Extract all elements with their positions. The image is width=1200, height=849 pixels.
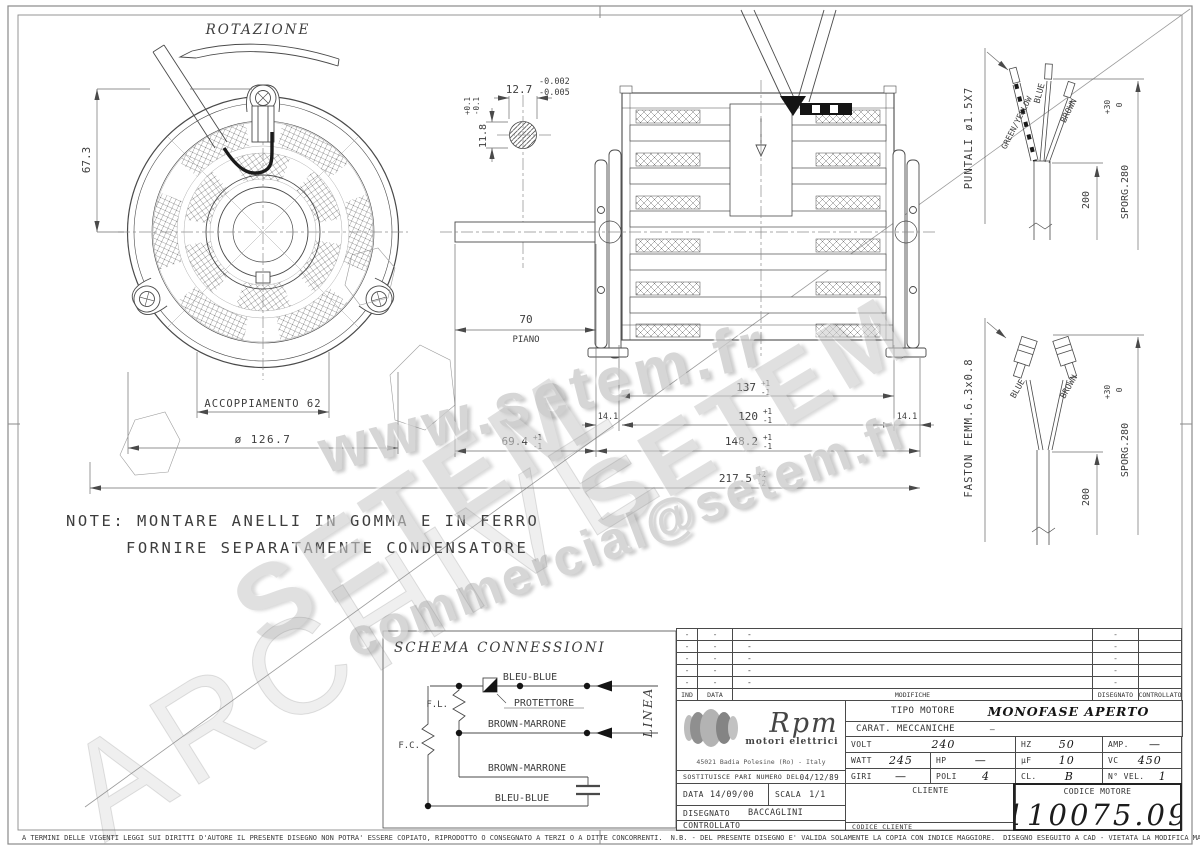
cl-label: CL.	[1021, 772, 1037, 781]
disegnato-cell: DISEGNATO BACCAGLINI	[676, 805, 846, 821]
schema-bleu-top: BLEU-BLUE	[503, 672, 557, 683]
data-value: 14/09/00	[710, 790, 754, 800]
tol-h-lower: -0.1	[472, 97, 481, 115]
logo-name: Rpm	[745, 710, 838, 737]
technical-drawing-sheet: ROTAZIONE 67.3 ACCOPPIAMENTO 62 ø 126.7 …	[0, 0, 1200, 849]
dim-70: 70	[519, 313, 532, 326]
poli-value: 4	[957, 770, 1015, 783]
tipo-motore-cell: TIPO MOTORE MONOFASE APERTO	[845, 700, 1183, 722]
puntali-label: PUNTALI ø1.5X7	[963, 87, 975, 190]
poli-cell: POLI 4	[930, 768, 1016, 784]
scala-value: 1/1	[809, 790, 826, 800]
tol-120-p: +1	[763, 407, 772, 416]
tol-upper: -0.002	[539, 77, 570, 87]
disegnato-label: DISEGNATO	[683, 809, 730, 818]
carat-value: —	[990, 725, 995, 734]
controllato-label: CONTROLLATO	[683, 821, 740, 830]
dim-14-1-right: 14.1	[897, 412, 917, 422]
codice-motore-value: 110075.09	[1013, 798, 1182, 831]
hz-label: HZ	[1021, 740, 1031, 749]
puntali-dim-sporg: SPORG.280	[1120, 165, 1131, 219]
uf-label: µF	[1021, 756, 1031, 765]
hz-cell: HZ 50	[1015, 736, 1103, 753]
volt-label: VOLT	[851, 740, 872, 749]
faston-dim-sporg: SPORG.280	[1120, 423, 1131, 477]
tol-217-p: +2	[757, 470, 766, 479]
uf-value: 10	[1031, 754, 1102, 767]
rpm-motor-logo-icon	[683, 708, 739, 748]
tipo-label: TIPO MOTORE	[846, 706, 955, 716]
puntali-dim-200: 200	[1081, 191, 1092, 209]
dim-148-2: 148.2	[725, 435, 758, 448]
tol-lower: -0.005	[539, 88, 570, 98]
vc-value: 450	[1118, 754, 1181, 767]
tol-69-p: +1	[533, 433, 542, 442]
volt-cell: VOLT 240	[845, 736, 1016, 753]
carat-label: CARAT. MECCANICHE	[856, 724, 955, 734]
schema-bleu-bottom: BLEU-BLUE	[495, 793, 549, 804]
dim-69-4: 69.4	[502, 435, 529, 448]
sostituisce-cell: SOSTITUISCE PARI NUMERO DEL 04/12/89	[676, 770, 846, 784]
nvel-cell: N° VEL. 1	[1102, 768, 1182, 784]
data-cell: DATA 14/09/00	[676, 783, 769, 806]
schema-protettore: PROTETTORE	[514, 698, 574, 709]
watt-cell: WATT 245	[845, 752, 931, 769]
wire-green-yellow-label: GREEN/YELLOW	[1000, 95, 1034, 151]
note-line1: NOTE: MONTARE ANELLI IN GOMMA E IN FERRO	[66, 512, 539, 530]
uf-cell: µF 10	[1015, 752, 1103, 769]
giri-label: GIRI	[851, 772, 872, 781]
tol-137-m: -1	[761, 388, 770, 397]
data-label: DATA	[683, 790, 704, 799]
motor-side-view	[440, 10, 938, 358]
dim-14-1-left: 14.1	[598, 412, 618, 422]
sostituisce-label: SOSTITUISCE PARI NUMERO DEL	[683, 773, 799, 781]
note-line2: FORNIRE SEPARATAMENTE CONDENSATORE	[126, 539, 528, 557]
schema-linea: LINEA	[641, 687, 655, 739]
codice-motore-label: CODICE MOTORE	[1064, 787, 1132, 796]
poli-label: POLI	[936, 772, 957, 781]
schema-brown-low: BROWN-MARRONE	[488, 763, 566, 774]
title-block: - - - - - - - - - - - - - - - - - - - - …	[676, 628, 1182, 830]
dim-217-5: 217.5	[719, 472, 752, 485]
rotation-indicator	[180, 44, 339, 66]
controllato-cell: CONTROLLATO	[676, 820, 846, 831]
sostituisce-date: 04/12/89	[800, 773, 839, 782]
amp-value: —	[1129, 738, 1181, 751]
dim-137: 137	[736, 381, 756, 394]
cl-value: B	[1037, 770, 1102, 783]
codice-motore-cell: CODICE MOTORE 110075.09	[1013, 783, 1182, 831]
tol-h-upper: +0.1	[463, 97, 472, 115]
amp-label: AMP.	[1108, 740, 1129, 749]
hz-value: 50	[1031, 738, 1102, 751]
codice-cliente-label: CODICE CLIENTE	[852, 823, 912, 831]
nvel-value: 1	[1145, 770, 1181, 783]
footer-nb: N.B. - DEL PRESENTE DISEGNO E' VALIDA SO…	[667, 834, 1000, 842]
dim-120: 120	[738, 410, 758, 423]
schema-fc: F.C.	[398, 741, 420, 751]
rotation-label: ROTAZIONE	[205, 22, 311, 38]
disegnato-value: BACCAGLINI	[748, 808, 803, 818]
faston-tol-plus: +30	[1103, 385, 1112, 400]
cliente-cell: CLIENTE	[845, 783, 1016, 823]
giri-cell: GIRI —	[845, 768, 931, 784]
dim-67-3: 67.3	[80, 147, 93, 174]
faston-blue-label: BLUE	[1009, 378, 1028, 401]
watt-value: 245	[872, 754, 930, 767]
tol-120-m: -1	[763, 416, 772, 425]
top-cables	[741, 10, 852, 116]
puntali-tol-plus: +30	[1103, 100, 1112, 115]
dim-piano: PIANO	[512, 335, 539, 345]
tol-148-m: -1	[763, 442, 772, 451]
codice-cliente-cell: CODICE CLIENTE	[845, 822, 1016, 831]
faston-label: FASTON FEMM.6.3x0.8	[963, 358, 975, 497]
giri-value: —	[872, 770, 930, 783]
volt-value: 240	[872, 738, 1015, 751]
vc-label: VC	[1108, 756, 1118, 765]
tol-148-p: +1	[763, 433, 772, 442]
manufacturer-logo-cell: Rpm motori elettrici 45021 Badia Polesin…	[676, 700, 846, 771]
dim-12-7: 12.7	[506, 83, 533, 96]
faston-tol-zero: 0	[1115, 387, 1124, 392]
tol-69-m: -1	[533, 442, 542, 451]
scala-cell: SCALA 1/1	[768, 783, 846, 806]
hp-label: HP	[936, 756, 946, 765]
dim-diameter: ø 126.7	[235, 433, 292, 446]
tol-217-m: -2	[757, 479, 766, 488]
faston-dim-200: 200	[1081, 488, 1092, 506]
cl-cell: CL. B	[1015, 768, 1103, 784]
motor-front-view	[118, 45, 408, 380]
hp-value: —	[946, 754, 1015, 767]
dim-accoppiamento: ACCOPPIAMENTO 62	[204, 398, 321, 410]
cliente-label: CLIENTE	[912, 786, 949, 795]
tol-137-p: +1	[761, 379, 770, 388]
watt-label: WATT	[851, 756, 872, 765]
schema-fl: F.L.	[426, 700, 448, 710]
hp-cell: HP —	[930, 752, 1016, 769]
tipo-value: MONOFASE APERTO	[955, 704, 1182, 719]
amp-cell: AMP. —	[1102, 736, 1182, 753]
logo-subtitle: motori elettrici	[745, 737, 838, 747]
dim-11-8: 11.8	[478, 124, 489, 148]
nvel-label: N° VEL.	[1108, 772, 1145, 781]
legal-footer: A TERMINI DELLE VIGENTI LEGGI SUI DIRITT…	[18, 831, 1182, 844]
puntali-tol-zero: 0	[1115, 102, 1124, 107]
logo-address: 45021 Badia Polesine (Ro) - Italy	[677, 758, 845, 766]
schema-brown-mid: BROWN-MARRONE	[488, 719, 566, 730]
scala-label: SCALA	[775, 790, 801, 799]
footer-copyright: A TERMINI DELLE VIGENTI LEGGI SUI DIRITT…	[18, 834, 667, 842]
schema-title: SCHEMA CONNESSIONI	[394, 640, 606, 656]
vc-cell: VC 450	[1102, 752, 1182, 769]
footer-cad: DISEGNO ESEGUITO A CAD - VIETATA LA MODI…	[999, 834, 1200, 842]
carat-cell: CARAT. MECCANICHE —	[845, 721, 1183, 737]
